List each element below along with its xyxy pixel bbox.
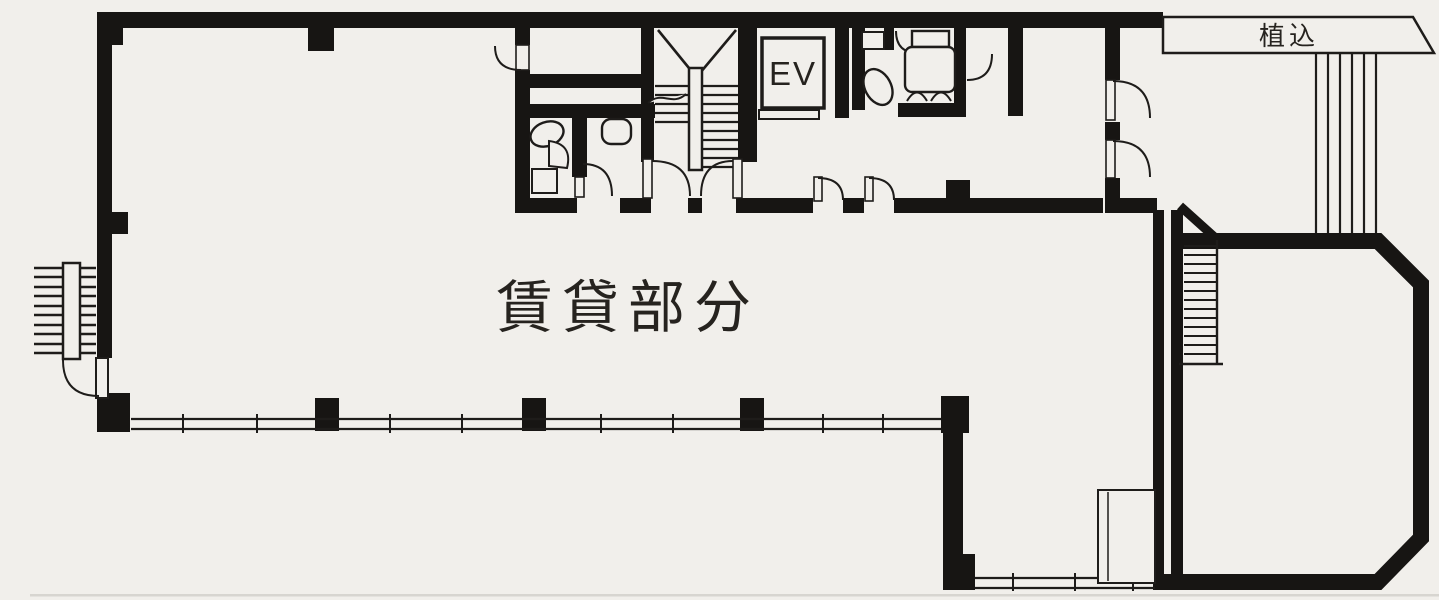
door-leaf: [516, 45, 529, 70]
stair-handrail: [63, 263, 80, 359]
floorplan-page: 植込: [0, 0, 1439, 600]
floorplan-drawing: 植込: [0, 0, 1439, 600]
wall-toilet-partition-a: [884, 28, 894, 50]
pilaster-left-mid: [110, 212, 128, 234]
central-staircase: [648, 30, 738, 170]
wall-corridor-south-2: [620, 198, 651, 213]
wall-right-a: [1105, 28, 1120, 80]
wall-notch-vertical: [943, 396, 963, 568]
elevator-door-sill: [759, 110, 819, 119]
wall-top: [97, 12, 1163, 28]
scan-edge-line: [30, 594, 1439, 597]
door-leaf: [865, 177, 873, 201]
wall-core-horiz-a: [528, 74, 643, 88]
door-leaf: [643, 159, 652, 198]
stair-handrail: [689, 68, 702, 170]
wall-corridor-south-6: [1120, 198, 1157, 213]
wall-room-1010: [1008, 28, 1023, 116]
wall-left-lower: [97, 215, 112, 358]
door-swing-arc: [1113, 141, 1150, 177]
door-swing-arc: [1113, 81, 1150, 118]
door-leaf: [1106, 80, 1115, 120]
door-leaf: [733, 159, 742, 198]
exterior-stair-left: [34, 263, 108, 398]
wall-core-west-b: [515, 70, 530, 213]
elevator-label: EV: [769, 55, 817, 92]
wall-right-c: [1105, 178, 1120, 213]
toilet-seat-hump: [907, 93, 927, 102]
door-swing-arc: [583, 164, 612, 196]
pilaster-top: [308, 28, 334, 51]
wall-right-b: [1105, 122, 1120, 140]
door-leaf: [575, 177, 584, 197]
wall-toilet-south: [898, 103, 966, 117]
column-window-2: [522, 398, 546, 431]
door-leaf: [96, 358, 108, 398]
wall-core-horiz-b: [526, 104, 655, 118]
stair-direction-line: [658, 30, 693, 73]
door-leaf: [1106, 140, 1115, 178]
wall-ev-east: [835, 28, 849, 118]
hand-sink: [862, 32, 884, 49]
rental-area-label: 賃貸部分: [496, 276, 760, 340]
closet: [1098, 490, 1155, 583]
pilaster-top-left: [107, 28, 123, 45]
wall-corridor-south-pier: [688, 198, 702, 213]
toilet-tank: [912, 31, 949, 47]
planting-strip: 植込: [1163, 17, 1434, 233]
door-swing-arc: [63, 360, 99, 396]
planting-label: 植込: [1259, 21, 1319, 51]
wall-corridor-south-3: [736, 198, 813, 213]
corner-sink: [549, 141, 568, 168]
pilaster-corridor-east: [946, 180, 970, 198]
door-swing-arc: [967, 54, 992, 80]
annex-outline: [1161, 241, 1421, 582]
column-window-3: [740, 398, 764, 431]
utility-box: [532, 169, 557, 193]
closet-outline: [1098, 490, 1155, 583]
door-swing-arc: [652, 161, 690, 196]
elevator: EV: [759, 38, 824, 119]
right-annex-room: [1161, 206, 1421, 582]
wall-corridor-south-1: [515, 198, 577, 213]
column-window-1: [315, 398, 339, 431]
wall-corridor-south-5: [894, 198, 1103, 213]
corner-notch-bottom: [943, 554, 975, 590]
door-leaf: [814, 177, 822, 201]
wc-cistern: [602, 119, 631, 144]
wall-wc-divider: [572, 115, 587, 177]
right-staircase: [1179, 240, 1223, 365]
wall-stair-east: [738, 28, 757, 162]
stair-direction-line: [700, 30, 736, 73]
toilet-bowl-east: [905, 47, 955, 92]
wall-double-east: [1171, 210, 1183, 582]
wall-stair-west: [641, 28, 654, 162]
wall-core-west-a: [515, 28, 530, 45]
wall-corridor-south-4: [843, 198, 864, 213]
toilet-seat-hump: [931, 93, 951, 102]
terrace-slope-lines: [1316, 54, 1376, 233]
toilet-block: [858, 31, 992, 110]
